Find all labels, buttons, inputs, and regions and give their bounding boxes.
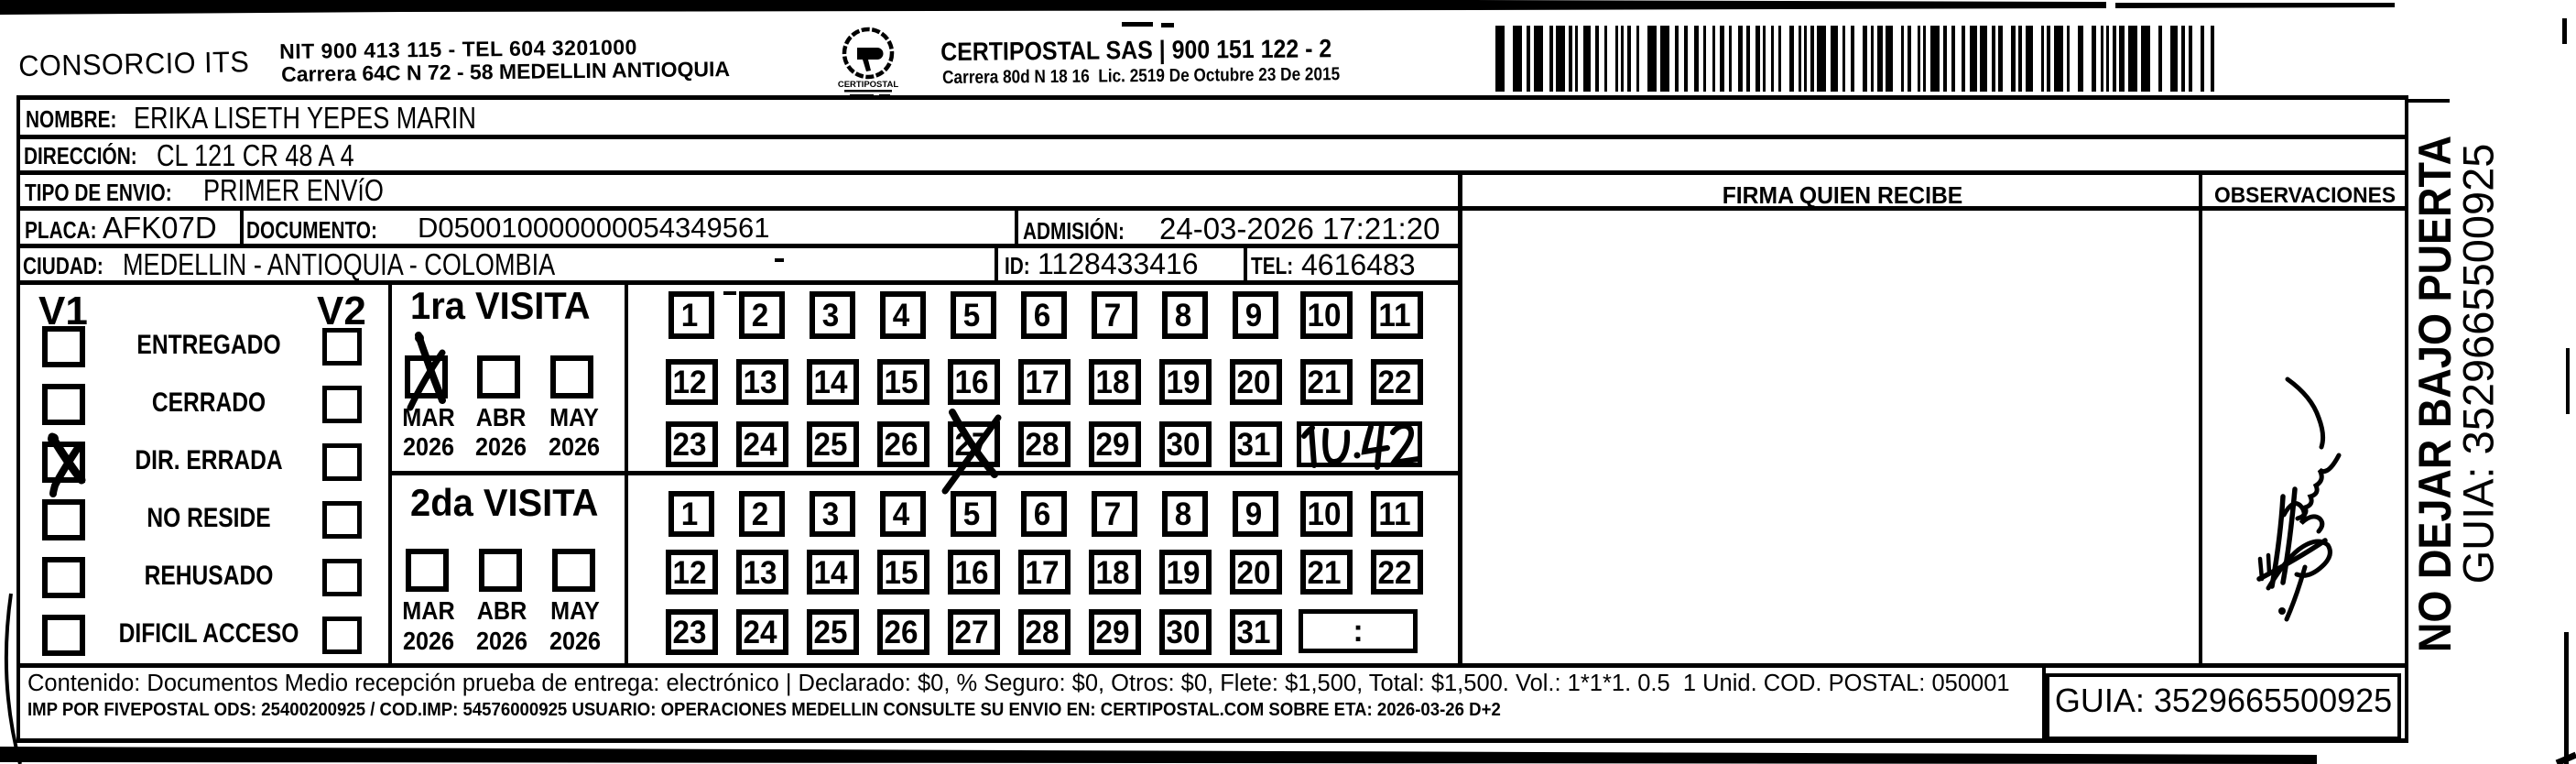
svg-text:CERTIPOSTAL: CERTIPOSTAL [838,80,899,90]
